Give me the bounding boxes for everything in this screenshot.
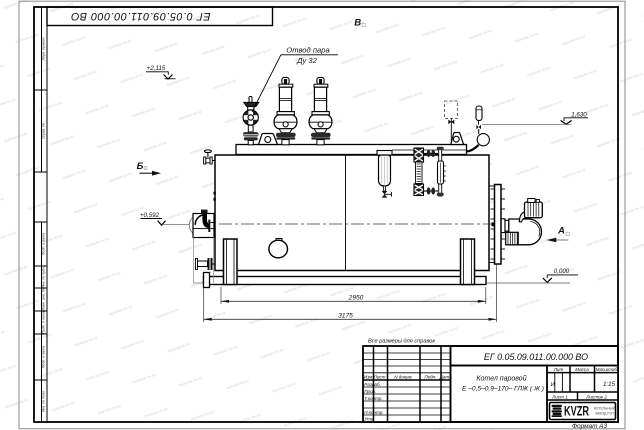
svg-text:Подп.: Подп. bbox=[424, 375, 436, 380]
svg-text:ЗАВОД РЭТ: ЗАВОД РЭТ bbox=[595, 411, 614, 415]
svg-text:И: И bbox=[551, 382, 555, 388]
svg-text:+0,592: +0,592 bbox=[140, 212, 160, 219]
svg-text:Масштаб: Масштаб bbox=[596, 367, 618, 372]
svg-text:Взам. инв. №: Взам. инв. № bbox=[42, 288, 46, 310]
svg-text:Формат А3: Формат А3 bbox=[572, 423, 607, 430]
svg-text:+2,115: +2,115 bbox=[147, 65, 166, 72]
svg-text:КОТЕЛЬНЫЙ: КОТЕЛЬНЫЙ bbox=[594, 406, 616, 410]
svg-text:А: А bbox=[557, 226, 565, 237]
svg-text:Изм.Лист: Изм.Лист bbox=[364, 375, 386, 380]
svg-text:Котел паровой: Котел паровой bbox=[476, 374, 526, 382]
svg-text:0,000: 0,000 bbox=[554, 268, 570, 275]
svg-text:Все размеры для справок: Все размеры для справок bbox=[368, 339, 435, 345]
svg-text:Масса: Масса bbox=[575, 367, 589, 372]
svg-text:Лист 1: Лист 1 bbox=[551, 395, 568, 400]
svg-text:Подп. и дата: Подп. и дата bbox=[42, 233, 46, 256]
svg-text:ЕГ 0.05.09.011.00.000 ВО: ЕГ 0.05.09.011.00.000 ВО bbox=[71, 10, 211, 22]
svg-text:Подп. и дата: Подп. и дата bbox=[42, 346, 46, 369]
svg-text:3175: 3175 bbox=[338, 312, 353, 319]
svg-text:Подп. и дата: Подп. и дата bbox=[42, 311, 46, 334]
svg-text:Ду 32: Ду 32 bbox=[296, 56, 318, 65]
svg-text:KVZR: KVZR bbox=[564, 404, 589, 419]
svg-text:Лит: Лит bbox=[553, 367, 564, 372]
svg-text:ЕГ 0.05.09.011.00.000 ВО: ЕГ 0.05.09.011.00.000 ВО bbox=[484, 352, 588, 362]
svg-text:Перв. примен.: Перв. примен. bbox=[42, 37, 46, 61]
svg-text:Б: Б bbox=[137, 161, 144, 172]
svg-text:Е –0,5–0,9–170– ГЛЖ ( Ж ): Е –0,5–0,9–170– ГЛЖ ( Ж ) bbox=[462, 385, 544, 392]
svg-text:Инв. № дубл.: Инв. № дубл. bbox=[42, 266, 46, 288]
svg-text:Инв. № подл.: Инв. № подл. bbox=[42, 390, 46, 412]
svg-text:Утв.: Утв. bbox=[364, 416, 374, 421]
svg-text:Справ. №: Справ. № bbox=[42, 123, 46, 139]
svg-text:2950: 2950 bbox=[348, 294, 364, 301]
svg-text:В: В bbox=[354, 18, 361, 29]
svg-text:Т.контр.: Т.контр. bbox=[364, 396, 383, 401]
svg-text:Разраб.: Разраб. bbox=[364, 382, 381, 387]
svg-text:N докум.: N докум. bbox=[394, 375, 413, 380]
svg-text:1:15: 1:15 bbox=[603, 381, 616, 388]
svg-text:Листов 2: Листов 2 bbox=[585, 395, 607, 400]
svg-text:Отвод пара: Отвод пара bbox=[286, 46, 329, 55]
svg-text:Н.контр.: Н.контр. bbox=[364, 410, 383, 415]
svg-text:1,630: 1,630 bbox=[571, 111, 587, 118]
svg-text:Пров.: Пров. bbox=[364, 389, 376, 394]
